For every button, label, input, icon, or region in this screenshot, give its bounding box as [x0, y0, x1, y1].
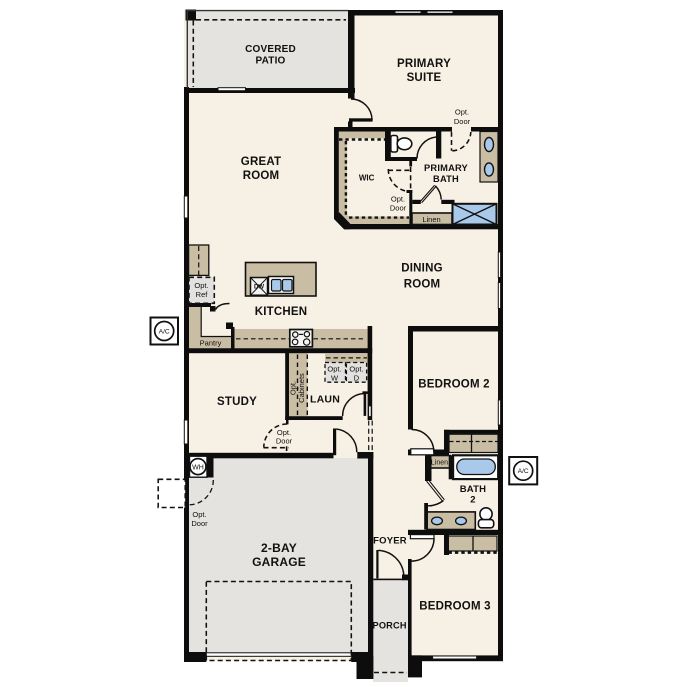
svg-text:W: W	[331, 374, 339, 383]
svg-text:PRIMARY: PRIMARY	[397, 58, 451, 70]
svg-text:DW: DW	[254, 285, 264, 291]
svg-text:Opt.: Opt.	[349, 365, 363, 374]
svg-text:Opt.: Opt.	[192, 510, 206, 519]
svg-text:Door: Door	[191, 519, 208, 528]
svg-text:Pantry: Pantry	[200, 338, 222, 347]
svg-text:Door: Door	[454, 117, 471, 126]
svg-text:ROOM: ROOM	[404, 279, 441, 291]
svg-text:Cabinets: Cabinets	[297, 373, 306, 403]
svg-text:Door: Door	[276, 436, 293, 445]
svg-text:STUDY: STUDY	[217, 396, 257, 408]
svg-text:DINING: DINING	[401, 263, 442, 275]
svg-text:KITCHEN: KITCHEN	[255, 306, 308, 318]
svg-text:BATH: BATH	[460, 484, 486, 495]
svg-text:BEDROOM 3: BEDROOM 3	[419, 601, 490, 613]
svg-text:2-BAY: 2-BAY	[261, 541, 297, 555]
svg-text:Door: Door	[390, 204, 407, 213]
svg-text:COVERED: COVERED	[245, 44, 296, 55]
svg-text:GARAGE: GARAGE	[252, 555, 306, 569]
svg-text:A/C: A/C	[518, 468, 529, 475]
svg-text:PRIMARY: PRIMARY	[424, 163, 469, 173]
svg-text:PORCH: PORCH	[373, 620, 407, 630]
svg-text:Linen: Linen	[422, 215, 440, 224]
svg-text:Ref: Ref	[196, 290, 209, 299]
svg-text:BEDROOM 2: BEDROOM 2	[418, 379, 489, 391]
svg-text:Opt.: Opt.	[455, 108, 469, 117]
svg-text:SUITE: SUITE	[407, 72, 442, 84]
svg-text:D: D	[354, 374, 360, 383]
svg-text:FOYER: FOYER	[373, 535, 407, 546]
svg-text:ROOM: ROOM	[243, 170, 280, 182]
svg-text:Linen: Linen	[431, 459, 448, 466]
svg-text:GREAT: GREAT	[241, 156, 281, 168]
svg-text:PATIO: PATIO	[255, 56, 285, 67]
svg-text:Opt.: Opt.	[194, 281, 208, 290]
svg-text:WH: WH	[192, 464, 204, 471]
svg-text:Opt.: Opt.	[391, 195, 405, 204]
svg-text:LAUN: LAUN	[310, 394, 340, 406]
svg-text:A/C: A/C	[159, 329, 170, 336]
svg-text:BATH: BATH	[433, 174, 459, 184]
svg-text:WIC: WIC	[359, 173, 375, 182]
svg-text:2: 2	[470, 494, 475, 505]
svg-text:Opt.: Opt.	[327, 365, 341, 374]
